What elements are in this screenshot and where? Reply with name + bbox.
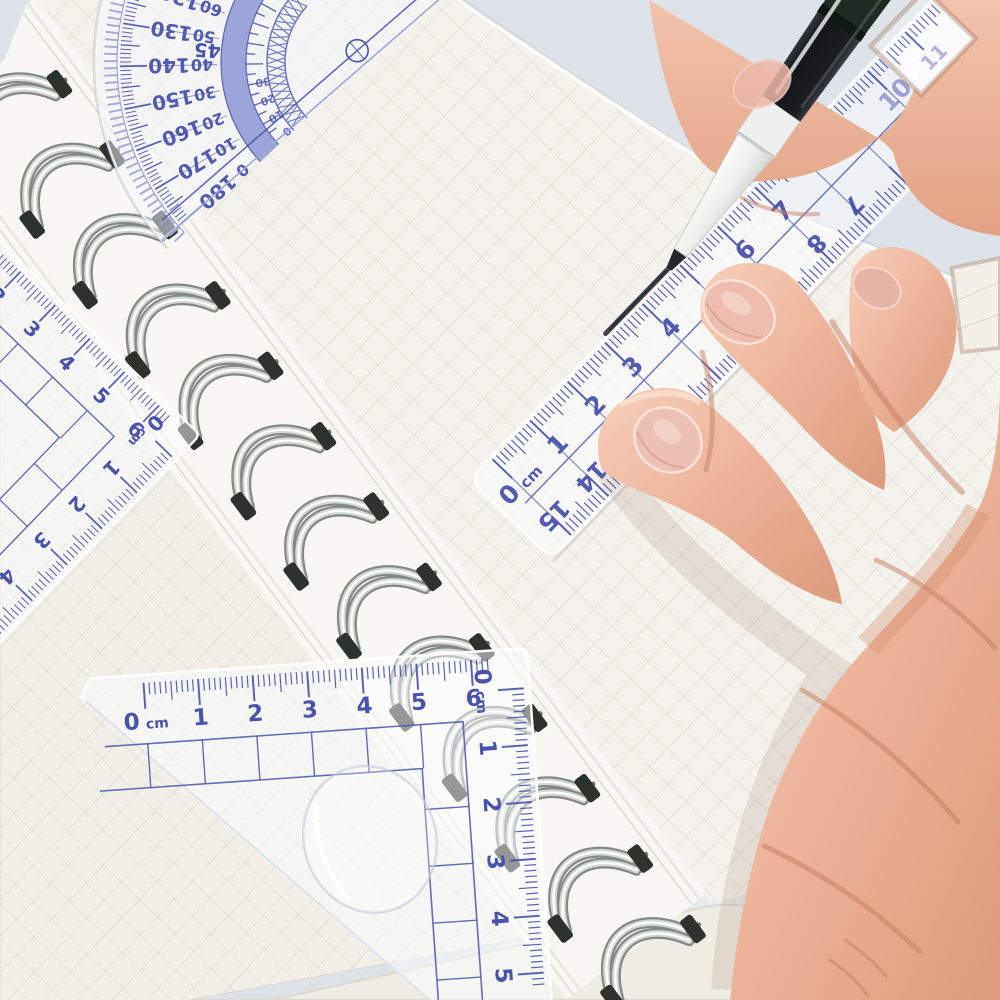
set-square-v-label: 2 (477, 796, 504, 814)
set-square-v-label: 4 (485, 910, 512, 928)
svg-text:3: 3 (481, 853, 508, 871)
set-square-h-label: 2 (246, 701, 264, 728)
svg-text:5: 5 (489, 967, 516, 985)
svg-text:1: 1 (473, 739, 500, 757)
svg-text:4: 4 (485, 910, 512, 928)
svg-text:45: 45 (193, 38, 221, 62)
photo-scene: 0cm1234560cm12345 0cm1234560cm12345 1801… (0, 0, 1000, 1000)
svg-text:2: 2 (477, 796, 504, 814)
svg-text:140: 140 (148, 53, 190, 78)
paper-window-right (952, 258, 1000, 352)
set-square-h-label: 1 (192, 704, 210, 731)
protractor-outer-label: 140 (148, 53, 190, 78)
set-square-v-label: 5 (489, 967, 516, 985)
set-square-h-label: 5 (410, 689, 428, 716)
set-square-v-label: 1 (473, 739, 500, 757)
set-square-h-label: 4 (356, 693, 374, 720)
protractor-45-label: 45 (193, 38, 221, 62)
set-square-h-label: 3 (301, 697, 319, 724)
set-square-v-label: 3 (481, 853, 508, 871)
